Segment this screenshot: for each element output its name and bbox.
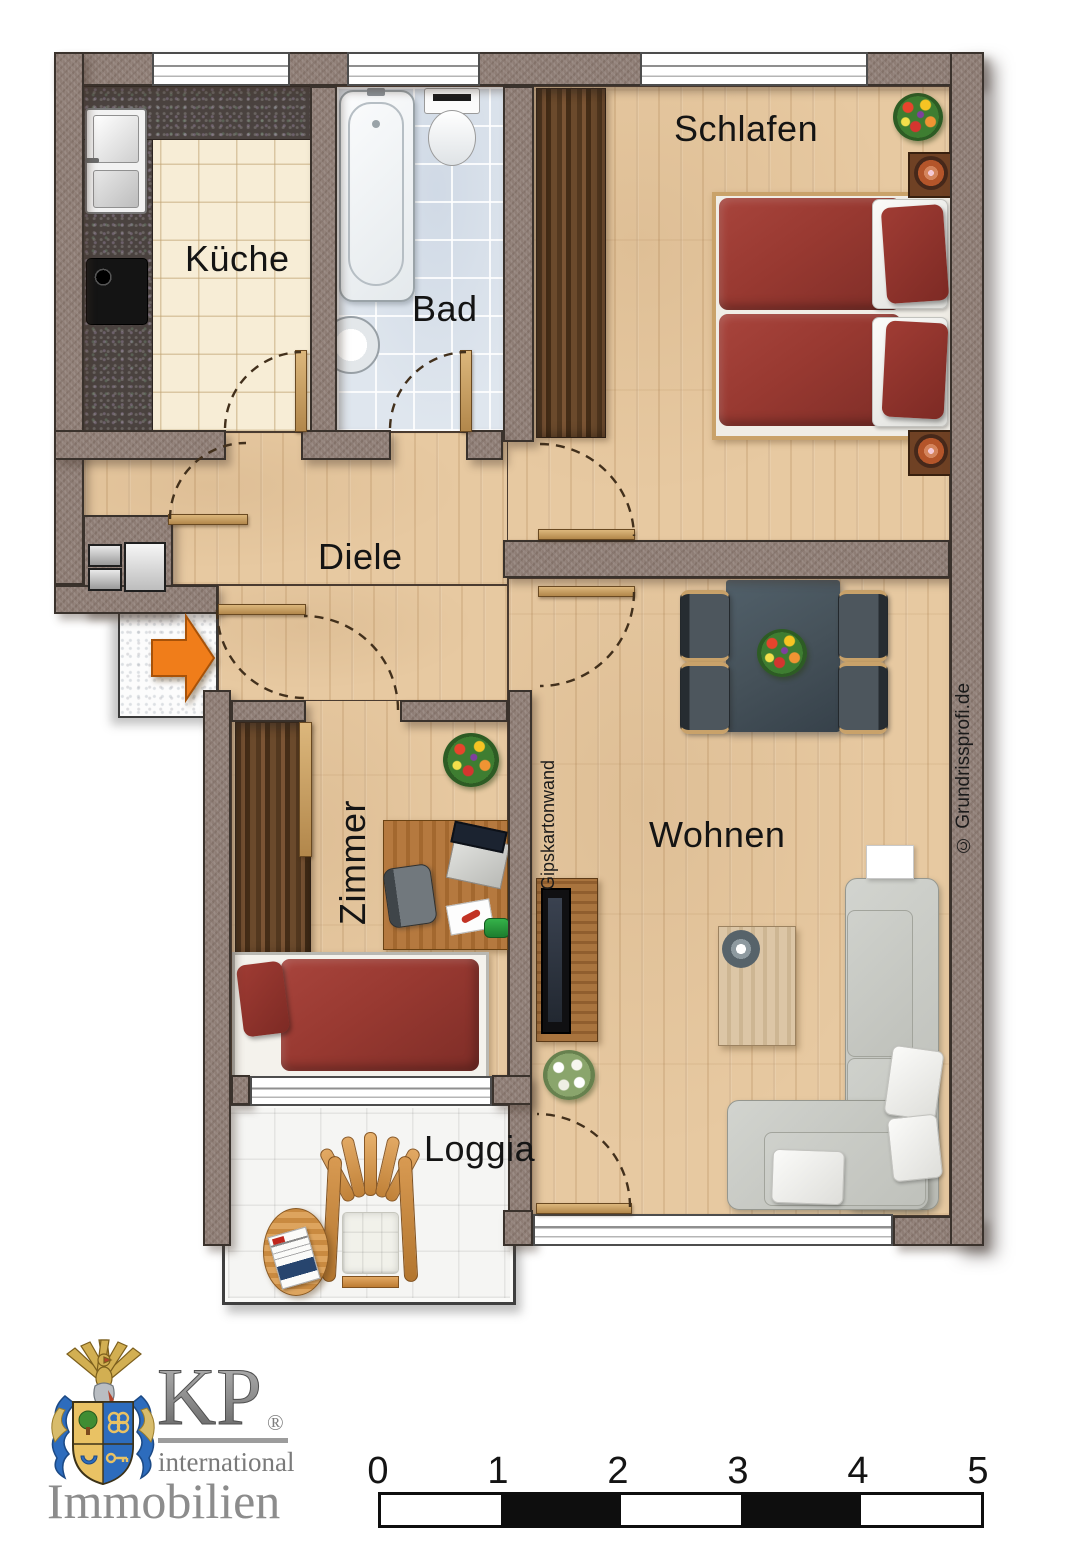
wall-bedroom-living	[503, 540, 950, 578]
coat-of-arms	[52, 1340, 154, 1484]
room-label-schlafen: Schlafen	[674, 108, 818, 150]
stove-cooktop	[86, 258, 148, 325]
scale-tick-1: 1	[487, 1450, 508, 1493]
single-bed-pillow	[236, 960, 290, 1037]
loggia-door	[536, 1203, 632, 1214]
closet-box-3	[124, 542, 166, 592]
bathtub	[339, 90, 415, 302]
niche-door	[168, 514, 248, 525]
deck-chair-back-slat-3	[364, 1132, 377, 1196]
scale-segment-2	[501, 1495, 621, 1525]
wall-zimmer-bottom-a	[231, 1075, 250, 1105]
scale-tick-2: 2	[607, 1450, 628, 1493]
bathtub-inner	[348, 102, 404, 286]
bathtub-drain	[372, 120, 380, 128]
dining-chair-top-left	[680, 590, 730, 662]
watermark-label: © Grundrissprofi.de	[953, 640, 975, 855]
paper-red-pen-icon	[460, 909, 481, 925]
zimmer-door	[299, 722, 312, 857]
wall-zimmer-top-b	[400, 700, 508, 722]
wall-bath-bedroom	[503, 86, 534, 442]
wall-zimmer-top-a	[231, 700, 306, 722]
partition-wall-label: Gipskartonwand	[538, 740, 559, 890]
wall-kitchen-bottom-c	[466, 430, 503, 460]
tv-screen-picture	[548, 898, 562, 1022]
scale-tick-3: 3	[727, 1450, 748, 1493]
scale-segment-3	[621, 1495, 741, 1525]
deck-chair-front-slat	[342, 1276, 399, 1288]
toilet	[424, 88, 480, 168]
wall-left	[54, 52, 84, 585]
sofa-right-cushion-1	[847, 910, 913, 1057]
room-label-wohnen: Wohnen	[649, 814, 785, 856]
hallway-floor-lower	[218, 585, 508, 702]
living-room-door	[538, 586, 635, 597]
bathtub-faucet	[367, 88, 385, 96]
dining-chair-bottom-left	[680, 662, 730, 734]
entrance-door	[218, 604, 306, 615]
bedroom-door	[538, 529, 635, 540]
scale-tick-0: 0	[367, 1450, 388, 1493]
deck-chair-cushion	[342, 1212, 399, 1274]
scale-bar-numbers: 0 1 2 3 4 5	[378, 1450, 978, 1490]
scale-segment-4	[741, 1495, 861, 1525]
deck-chair	[325, 1130, 415, 1282]
sofa-pillow-2	[887, 1114, 943, 1183]
room-label-diele: Diele	[318, 536, 403, 578]
toilet-bowl	[428, 110, 476, 166]
wall-kitchen-bath	[310, 86, 337, 432]
wall-zimmer-left	[203, 690, 231, 1246]
room-label-zimmer: Zimmer	[332, 800, 374, 925]
logo-monogram: KP	[157, 1351, 262, 1442]
sofa-pillow-3	[771, 1149, 845, 1205]
dining-flower-bouquet-icon	[757, 629, 807, 677]
kitchen-door	[295, 350, 307, 432]
desk-green-item	[484, 918, 510, 938]
sofa-pillow-1	[883, 1045, 944, 1122]
wall-kitchen-bottom-b	[301, 430, 391, 460]
dining-chair-bottom-right	[838, 662, 888, 734]
sink-basin-small	[93, 170, 139, 208]
scale-segment-5	[861, 1495, 981, 1525]
sink-basin-large	[93, 115, 139, 163]
sofa-side-table	[866, 845, 914, 879]
double-bed-pillow-red-bottom	[882, 320, 949, 419]
closet-box-1	[88, 544, 122, 567]
scale-bar: 0 1 2 3 4 5	[378, 1450, 978, 1522]
wall-kitchen-bottom-a	[54, 430, 226, 460]
toilet-lid-line	[433, 94, 471, 101]
room-label-bad: Bad	[412, 288, 478, 330]
dining-chair-top-right	[838, 590, 888, 662]
kitchen-sink	[85, 108, 147, 214]
room-label-kueche: Küche	[185, 238, 290, 280]
lamp-top-icon	[914, 156, 948, 190]
tv-screen	[541, 888, 571, 1034]
scale-segment-1	[381, 1495, 501, 1525]
kitchen-window	[152, 52, 290, 86]
wall-living-bottom-left	[503, 1210, 533, 1246]
floor-plan-canvas: Küche Bad Schlafen Diele Wohnen Loggia Z…	[0, 0, 1072, 1547]
living-room-window	[533, 1214, 893, 1246]
living-plant-icon	[543, 1050, 595, 1100]
double-bed-pillow-red-top	[881, 204, 950, 304]
closet-box-2	[88, 568, 122, 591]
lamp-bottom-icon	[914, 434, 948, 468]
zimmer-flower-bouquet-icon	[443, 733, 499, 787]
bedroom-flower-bouquet-icon	[893, 93, 943, 141]
logo-company: Immobilien	[47, 1473, 280, 1528]
logo-registered-icon: ®	[267, 1410, 284, 1435]
wall-zimmer-bottom-b	[492, 1075, 532, 1105]
decor-bowl-icon	[722, 930, 760, 968]
zimmer-loggia-window	[250, 1076, 492, 1106]
bedroom-wardrobe	[536, 88, 606, 438]
scale-bar-segments	[378, 1492, 984, 1528]
magazine-red-title	[272, 1236, 285, 1245]
scale-tick-5: 5	[967, 1450, 988, 1493]
single-bed-duvet	[281, 959, 479, 1071]
bedroom-window	[640, 52, 868, 86]
room-label-loggia: Loggia	[424, 1128, 535, 1170]
bathroom-door	[460, 350, 472, 432]
scale-tick-4: 4	[847, 1450, 868, 1493]
sink-faucet	[85, 158, 99, 163]
bathroom-window	[347, 52, 480, 86]
company-logo: KP ® international Immobilien	[45, 1338, 305, 1528]
desk-chair	[382, 863, 438, 929]
